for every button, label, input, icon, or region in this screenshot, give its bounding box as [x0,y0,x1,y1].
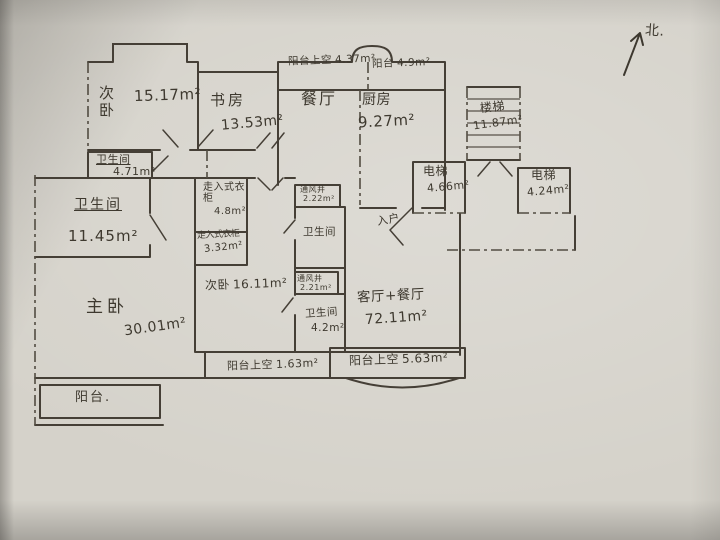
room-label-master: 主卧 [86,298,128,317]
room-name: 阳台 [372,57,394,70]
floor-plan-drawing [0,0,720,540]
room-label-bedroom2-top: 次卧 [99,85,119,119]
room-area: 4.9m² [397,56,431,69]
room-name: 次卧 [205,278,230,293]
room-label-bath-lower: 卫生间 [305,307,339,321]
area-label-bedroom2-top: 15.17m² [134,86,202,105]
floor-plan-photo: 北. 次卧 15.17m² 书房 13.53m² 阳台上空4.37m² 阳台4.… [0,0,720,540]
room-label-bath-mid: 卫生间 [303,227,336,239]
label-balcony-top: 阳台4.9m² [372,57,434,71]
room-name: 阳台上空 [349,352,399,368]
room-label-balcony-bottom: 阳台. [75,391,111,406]
room-label-elevator-left: 电梯 [423,165,448,178]
room-area: 5.63m² [402,350,449,366]
room-area: 1.63m² [276,356,319,370]
compass-north-label: 北. [644,23,664,40]
room-label-bath-master: 卫生间 [74,198,122,214]
area-label-shaft-upper: 2.22m² [303,195,335,204]
area-label-bath-small: 4.71m² [113,166,156,178]
area-label-kitchen: 9.27m² [358,112,416,132]
room-name: 阳台上空 [227,358,273,373]
room-label-kitchen: 厨房 [362,93,391,109]
room-label-dining: 餐厅 [301,90,337,108]
north-arrow-icon [624,33,643,75]
area-label-shaft-lower: 2.21m² [300,284,332,293]
room-label-study: 书房 [210,92,246,109]
room-label-closet-upper: 走入式衣柜 [203,182,245,204]
area-label-bath-master: 11.45m² [68,228,139,245]
room-label-stairs: 楼梯 [479,100,505,116]
room-name: 阳台上空 [288,54,332,68]
area-label-bath-lower: 4.2m² [311,323,345,335]
room-label-elevator-right: 电梯 [531,169,556,182]
area-label-closet-upper: 4.8m² [214,206,246,217]
room-area: 4.37m² [335,53,376,66]
room-area: 16.11m² [233,276,288,292]
